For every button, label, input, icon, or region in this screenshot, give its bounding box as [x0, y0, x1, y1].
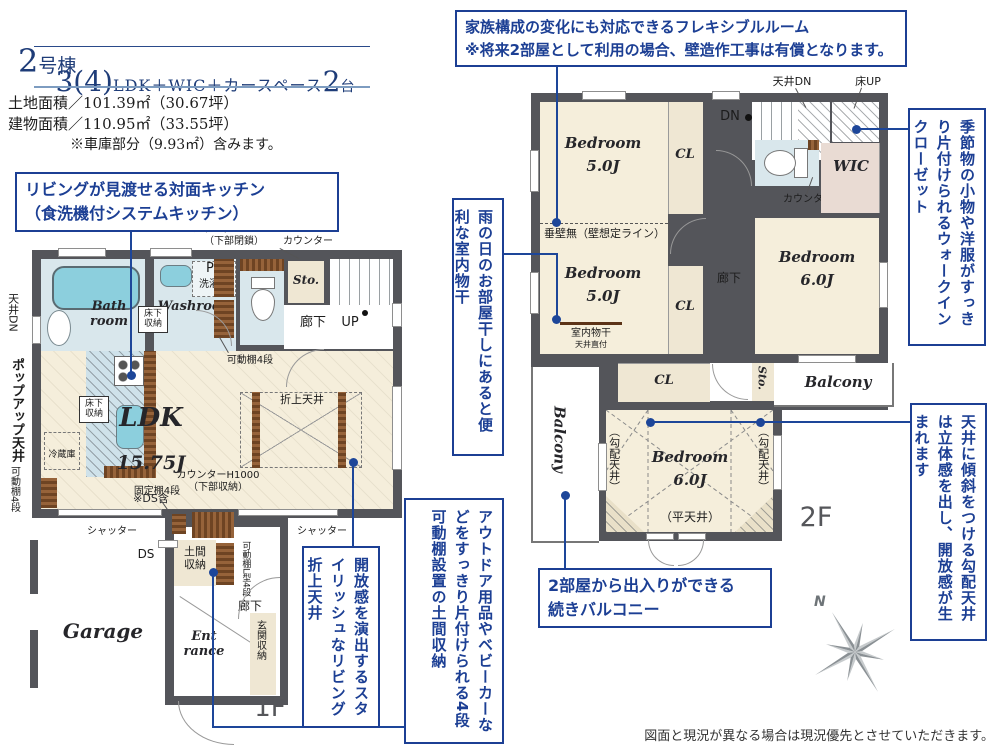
closet-1-label: CL — [672, 148, 698, 163]
toilet-tank-2f — [794, 148, 808, 178]
entrance-label: Ent rance — [178, 630, 230, 660]
slope-leader-line — [650, 421, 910, 423]
callout-balcony: 2部屋から出入りができる 続きバルコニー — [538, 568, 772, 628]
floor2-label: 2F — [788, 502, 844, 533]
doma-shelf — [216, 543, 234, 585]
drying-leader-dot — [552, 315, 561, 324]
header-rule-bottom — [34, 86, 370, 88]
wic-room — [821, 143, 880, 213]
up-label: UP — [336, 316, 364, 331]
f2-window-top2 — [712, 91, 740, 100]
counter-label-1f: カウンター — [282, 236, 334, 248]
garage-label: Garage — [58, 620, 148, 643]
shutter-window-left — [58, 509, 162, 516]
up-dot — [362, 310, 368, 316]
balcony-right-label: Balcony — [796, 374, 880, 391]
f1-window-right-ldk — [392, 386, 402, 470]
coffered-label: 折上天井 — [272, 394, 332, 407]
ds-label: DS — [132, 548, 160, 562]
compass-rose-icon — [800, 597, 910, 707]
ceiling-dn-1f-label: 天井DN — [6, 293, 19, 332]
genkan-storage-label: 玄関収納 — [254, 620, 266, 660]
kitchen-leader-line — [130, 228, 132, 375]
ceiling-dn-2f-label: 天井DN — [768, 76, 816, 89]
fridge-label: 冷蔵庫 — [44, 450, 80, 460]
footer-note: 図面と現況が異なる場合は現況優先とさせていただきます。 — [600, 730, 994, 745]
bedroom5b-label: Bedroom 5.0J — [558, 262, 648, 307]
underfloor-storage-washroom: 床下 収納 — [138, 306, 168, 333]
hallway-1f-label: 廊下 — [296, 316, 330, 331]
sloped-ceiling-right-label: （勾配天井） — [756, 426, 769, 492]
f2-window-left1 — [530, 150, 539, 192]
bedroom6-bottom-window-left — [598, 443, 607, 491]
plan-count: 2 — [323, 65, 341, 98]
fixed-shelf-label: 固定棚4段 — [128, 486, 186, 498]
f1-window-right-hall — [392, 303, 402, 327]
callout-flexible-room: 家族構成の変化にも対応できるフレキシブルルーム ※将来2部屋として利用の場合、壁… — [455, 10, 907, 67]
drying-leader-h — [502, 253, 558, 255]
shutter-right-label: シャッター — [290, 526, 354, 538]
ceiling-mount-label: 天井直付 — [562, 340, 620, 349]
tarekabe-label: 垂壁無（壁想定ライン） — [540, 228, 684, 241]
doma-leader-v — [212, 574, 214, 728]
closet-2-label: CL — [672, 300, 698, 315]
bedroom5a-label: Bedroom 5.0J — [558, 132, 648, 177]
toilet-tank-1f — [251, 277, 275, 289]
balcony-left-label: Balcony — [550, 406, 567, 473]
flexible-leader-dot — [552, 218, 561, 227]
callout-kitchen: リビングが見渡せる対面キッチン （食洗機付システムキッチン） — [15, 172, 339, 232]
hallway-2f-label: 廊下 — [712, 272, 746, 286]
bedroom6-bottom-window-right — [773, 435, 782, 490]
f1-window-top1 — [58, 248, 106, 257]
f1-window-left — [32, 316, 41, 344]
storage-2f-label: Sto. — [755, 366, 768, 390]
balcony-leader-line — [564, 497, 566, 568]
storage-1f-label: Sto. — [290, 274, 322, 288]
compass: N — [800, 592, 910, 707]
garage-shelf-left — [41, 478, 57, 508]
wic-label: WIC — [828, 158, 874, 175]
movable-shelf-l4-label: 可動棚L型4段 — [240, 541, 250, 597]
counter-side-small — [172, 514, 186, 534]
ldk-name: LDK — [88, 404, 214, 434]
floor1-label: 1F — [244, 694, 296, 724]
garage-note: ※車庫部分（9.93㎡）含みます。 — [70, 137, 282, 153]
garage-wall-seg2 — [30, 630, 38, 688]
garage-wall-seg1 — [30, 540, 38, 594]
balcony-swing-door2 — [678, 540, 704, 566]
floor-up-label: 床UP — [848, 76, 888, 89]
flat-ceiling-label: （平天井） — [650, 511, 730, 525]
floor-plan-sheet: 2号棟 3(4)LDK＋WIC＋カースペース2台 土地面積／101.39㎡（30… — [0, 0, 1000, 751]
plan-type: 3(4)LDK＋WIC＋カースペース2台 — [40, 48, 370, 99]
balcony-door-slot1 — [646, 533, 674, 540]
callout-wic: 季節物の小物や洋服がすっきり片付けられるウォークインクローゼット — [908, 108, 986, 346]
callout-coffered-ceiling: 開放感を演出するスタイリッシュなリビング折上天井 — [302, 546, 380, 728]
building-area: 建物面積／110.95㎡（33.55坪） — [8, 116, 238, 133]
entrance-door-arc — [178, 701, 234, 745]
counter-under-storage — [192, 512, 234, 538]
stairs-1f — [330, 259, 393, 305]
ds-slot — [158, 540, 178, 548]
shelf-upper — [214, 259, 234, 297]
wic-leader-line — [858, 128, 908, 130]
toilet-counter-2f — [808, 140, 819, 150]
floor-up-hatch — [832, 102, 879, 142]
monohoshi-label: 室内物干 — [560, 328, 622, 340]
flexible-leader-line — [556, 62, 558, 222]
dn-dot — [745, 114, 752, 121]
header-rule-top — [34, 46, 370, 47]
bath-stool — [47, 310, 71, 346]
bedroom6-right-label: Bedroom 6.0J — [772, 246, 862, 291]
callout-sloped-ceiling: 天井に傾斜をつける勾配天井は立体感を出し、開放感が生まれます — [910, 403, 987, 641]
balcony-door-slot2 — [678, 533, 706, 540]
dn-label: DN — [716, 110, 744, 125]
f1-window-top2 — [150, 248, 192, 257]
f2-window-left2 — [530, 272, 539, 314]
f2-window-top1 — [582, 91, 626, 100]
shutter-left-label: シャッター — [80, 526, 144, 538]
bedroom6-bottom-label: Bedroom 6.0J — [645, 446, 735, 491]
balcony-swing-door1 — [648, 540, 674, 566]
sloped-ceiling-left-label: （勾配天井） — [607, 426, 620, 492]
doma-storage-label: 土間 収納 — [178, 546, 212, 571]
coffered-leader-line — [352, 464, 354, 546]
popup-ceiling-label: ポップアップ天井 — [8, 358, 23, 462]
land-area: 土地面積／101.39㎡（30.67坪） — [8, 95, 238, 112]
monohoshi-bar — [560, 322, 622, 325]
building-number: 2 — [18, 42, 38, 80]
shutter-window-right — [238, 509, 338, 516]
movable-shelf4-label: 可動棚4段 — [218, 355, 282, 367]
callout-indoor-drying: 雨の日のお部屋干しにあると便利な室内物干 — [452, 198, 504, 456]
coffered-beam-left — [252, 392, 260, 468]
drying-leader-v — [556, 253, 558, 319]
balcony-slider-window — [798, 355, 856, 363]
toilet-bowl-2f — [764, 150, 796, 176]
callout-doma-storage: アウトドア用品やベビーカーなどをすっきり片付けられる4段可動棚設置の土間収納 — [404, 498, 504, 744]
movable-shelf4-left-label: 可動棚4段 — [8, 466, 20, 512]
ldk-label: LDK 15.75J ※DS含 — [88, 386, 214, 524]
coffered-beam-right — [338, 392, 346, 468]
closet-3-label: CL — [648, 374, 680, 389]
washbasin — [160, 265, 192, 287]
f2-window-right1 — [879, 262, 888, 308]
kitchen-leader-dot — [127, 371, 136, 380]
toilet-counter-1f — [240, 259, 284, 271]
